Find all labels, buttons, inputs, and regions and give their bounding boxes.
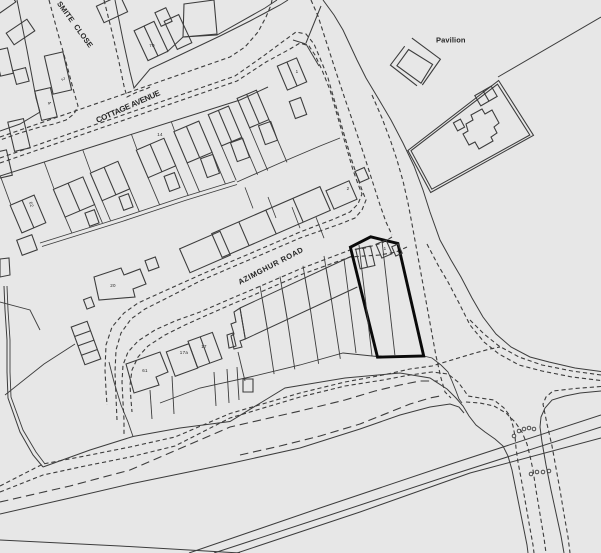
svg-text:70: 70 [149,43,155,48]
svg-text:17: 17 [201,344,207,349]
svg-text:20: 20 [110,283,116,288]
svg-text:14: 14 [157,132,163,137]
svg-text:Pavilion: Pavilion [436,36,466,45]
svg-text:1: 1 [296,69,299,74]
svg-text:2: 2 [347,186,350,191]
svg-text:1: 1 [384,246,387,251]
svg-text:17a: 17a [180,350,189,355]
svg-text:61: 61 [142,368,148,373]
